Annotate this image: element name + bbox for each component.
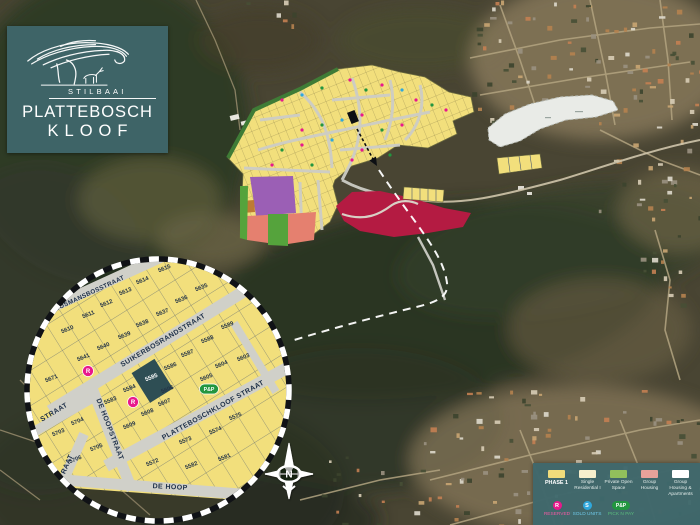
milkwood-tree-icon [21, 32, 139, 90]
zone-apartments [250, 176, 296, 216]
zone-group-housing-2 [288, 212, 316, 244]
legend-zone-row: PHASE 1Single Residential IPrivate Open … [533, 463, 700, 497]
legend-marker-label: SOLD UNITS [573, 512, 602, 517]
logo-name-line1: PLATTEBOSCH [7, 103, 168, 122]
legend-item: Group Housing & Apartments [665, 470, 696, 497]
legend-swatch [610, 470, 627, 478]
legend-marker-item: RRESERVED [546, 501, 568, 517]
legend-label: PHASE 1 [542, 480, 572, 486]
legend-label: Group Housing [635, 480, 665, 492]
legend-marker-label: PICK N PAY [608, 512, 634, 517]
compass-north-label: N [285, 469, 292, 480]
svg-text:P&P: P&P [204, 387, 215, 393]
logo-name-line2: KLOOF [7, 122, 168, 141]
legend-swatch [548, 470, 565, 478]
legend-swatch [579, 470, 596, 478]
svg-text:R: R [86, 369, 91, 375]
logo-location: STILBAAI [68, 87, 127, 96]
legend-label: Private Open Space [604, 480, 634, 492]
legend-marker-badge: P&P [612, 501, 630, 510]
svg-text:R: R [131, 400, 136, 406]
legend-swatch [641, 470, 658, 478]
legend-label: Single Residential I [573, 480, 603, 492]
legend-item: Private Open Space [603, 470, 634, 497]
logo-divider [49, 98, 156, 99]
legend-marker-badge: R [553, 501, 562, 510]
zone-open-space-1 [268, 214, 288, 246]
aerial-map-flyer: BOOSMANSBOSSTRAATSUIKERBOSRANDSTRAATPLAT… [0, 0, 700, 525]
legend: PHASE 1Single Residential IPrivate Open … [533, 463, 700, 525]
legend-marker-label: RESERVED [544, 512, 570, 517]
logo-card: STILBAAI PLATTEBOSCH KLOOF [7, 26, 168, 153]
legend-marker-row: RRESERVEDSSOLD UNITSP&PPICK N PAY [533, 497, 700, 517]
legend-marker-item: P&PPICK N PAY [606, 501, 636, 517]
legend-item: Group Housing [634, 470, 665, 497]
legend-swatch [672, 470, 689, 478]
legend-marker-badge: S [583, 501, 592, 510]
legend-label: Group Housing & Apartments [666, 480, 696, 497]
zone-group-housing-1 [246, 215, 268, 243]
buck-silhouette-icon [84, 68, 103, 83]
legend-item: PHASE 1 [541, 470, 572, 497]
legend-marker-item: SSOLD UNITS [575, 501, 599, 517]
legend-item: Single Residential I [572, 470, 603, 497]
zone-open-space-2 [240, 186, 248, 240]
